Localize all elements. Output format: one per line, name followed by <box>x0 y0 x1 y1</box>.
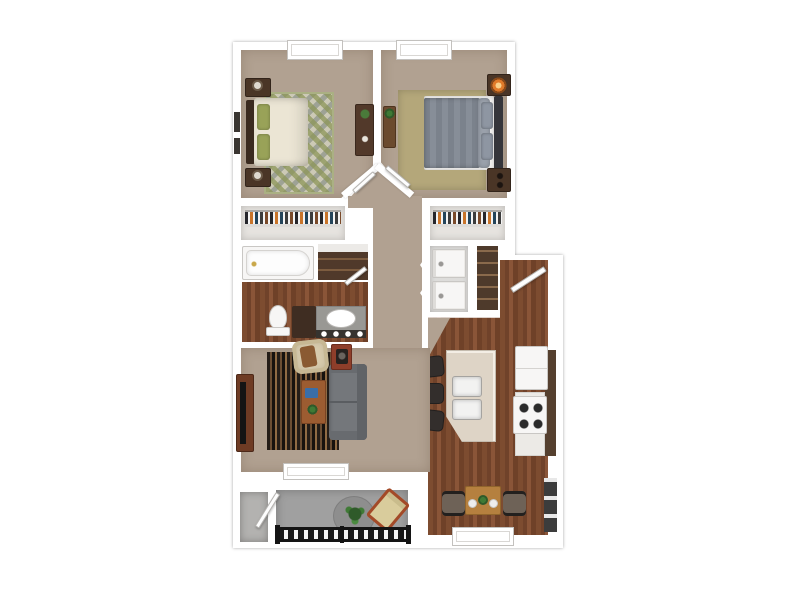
toilet-tank <box>266 327 290 336</box>
dining-plate <box>468 499 477 508</box>
bedroom1-pillow <box>257 134 270 160</box>
vanity-light-strip <box>316 330 366 338</box>
sofa-armrest <box>329 431 357 440</box>
patio-plant <box>344 502 366 526</box>
bathtub-basin <box>246 250 310 276</box>
bedroom2-plant <box>384 108 395 119</box>
bedroom2-window <box>396 40 452 60</box>
tv-screen <box>240 382 246 444</box>
dryer <box>432 281 466 310</box>
bedroom1-window <box>287 40 343 60</box>
bedroom1-lamp <box>252 80 263 91</box>
closet2-hanging-clothes <box>433 210 502 227</box>
bedroom1-desk <box>355 104 374 156</box>
dining-wall-niche <box>544 478 557 532</box>
island-sink-basin <box>452 376 482 397</box>
bedroom2-headboard <box>494 96 503 170</box>
vanity-sink <box>326 309 356 328</box>
patio-railing-post <box>406 525 411 544</box>
island-sink-basin <box>452 399 482 420</box>
sofa-cushion-divider <box>329 401 357 403</box>
living-patio-window <box>283 463 349 480</box>
hall-corridor-carpet <box>373 205 422 348</box>
dining-centerpiece-plant <box>478 495 488 505</box>
coffee-table-book <box>305 388 318 398</box>
bedroom2-lamp-orange <box>490 77 507 94</box>
bedroom2-pillow <box>481 102 493 129</box>
washer <box>432 249 466 278</box>
patio-railing-post <box>340 526 344 543</box>
toilet-bowl <box>269 305 287 329</box>
dining-chair <box>442 491 465 516</box>
bedroom2-pillow <box>481 133 493 160</box>
pantry-shelves <box>477 246 498 310</box>
bathroom-cabinet <box>292 306 316 338</box>
dining-plate <box>489 499 498 508</box>
bedroom1-pillow <box>257 104 270 130</box>
sofa-backrest <box>357 364 367 440</box>
floor-plan-canvas <box>0 0 800 600</box>
refrigerator <box>515 346 548 390</box>
coffee-table-plant <box>307 404 318 415</box>
stove <box>513 396 547 434</box>
bedroom2-duvet <box>424 98 480 168</box>
bedroom1-wall-art <box>234 112 240 132</box>
bedroom2-nightstand-bottom <box>487 168 511 192</box>
patio-railing-post <box>275 525 280 544</box>
side-table-speaker <box>336 349 348 364</box>
coffee-table <box>301 380 326 424</box>
bedroom1-wall-art <box>234 138 240 154</box>
dining-window <box>452 527 514 546</box>
bedroom1-lamp <box>252 170 263 181</box>
dining-chair <box>503 491 526 516</box>
closet1-hanging-clothes <box>245 210 341 227</box>
